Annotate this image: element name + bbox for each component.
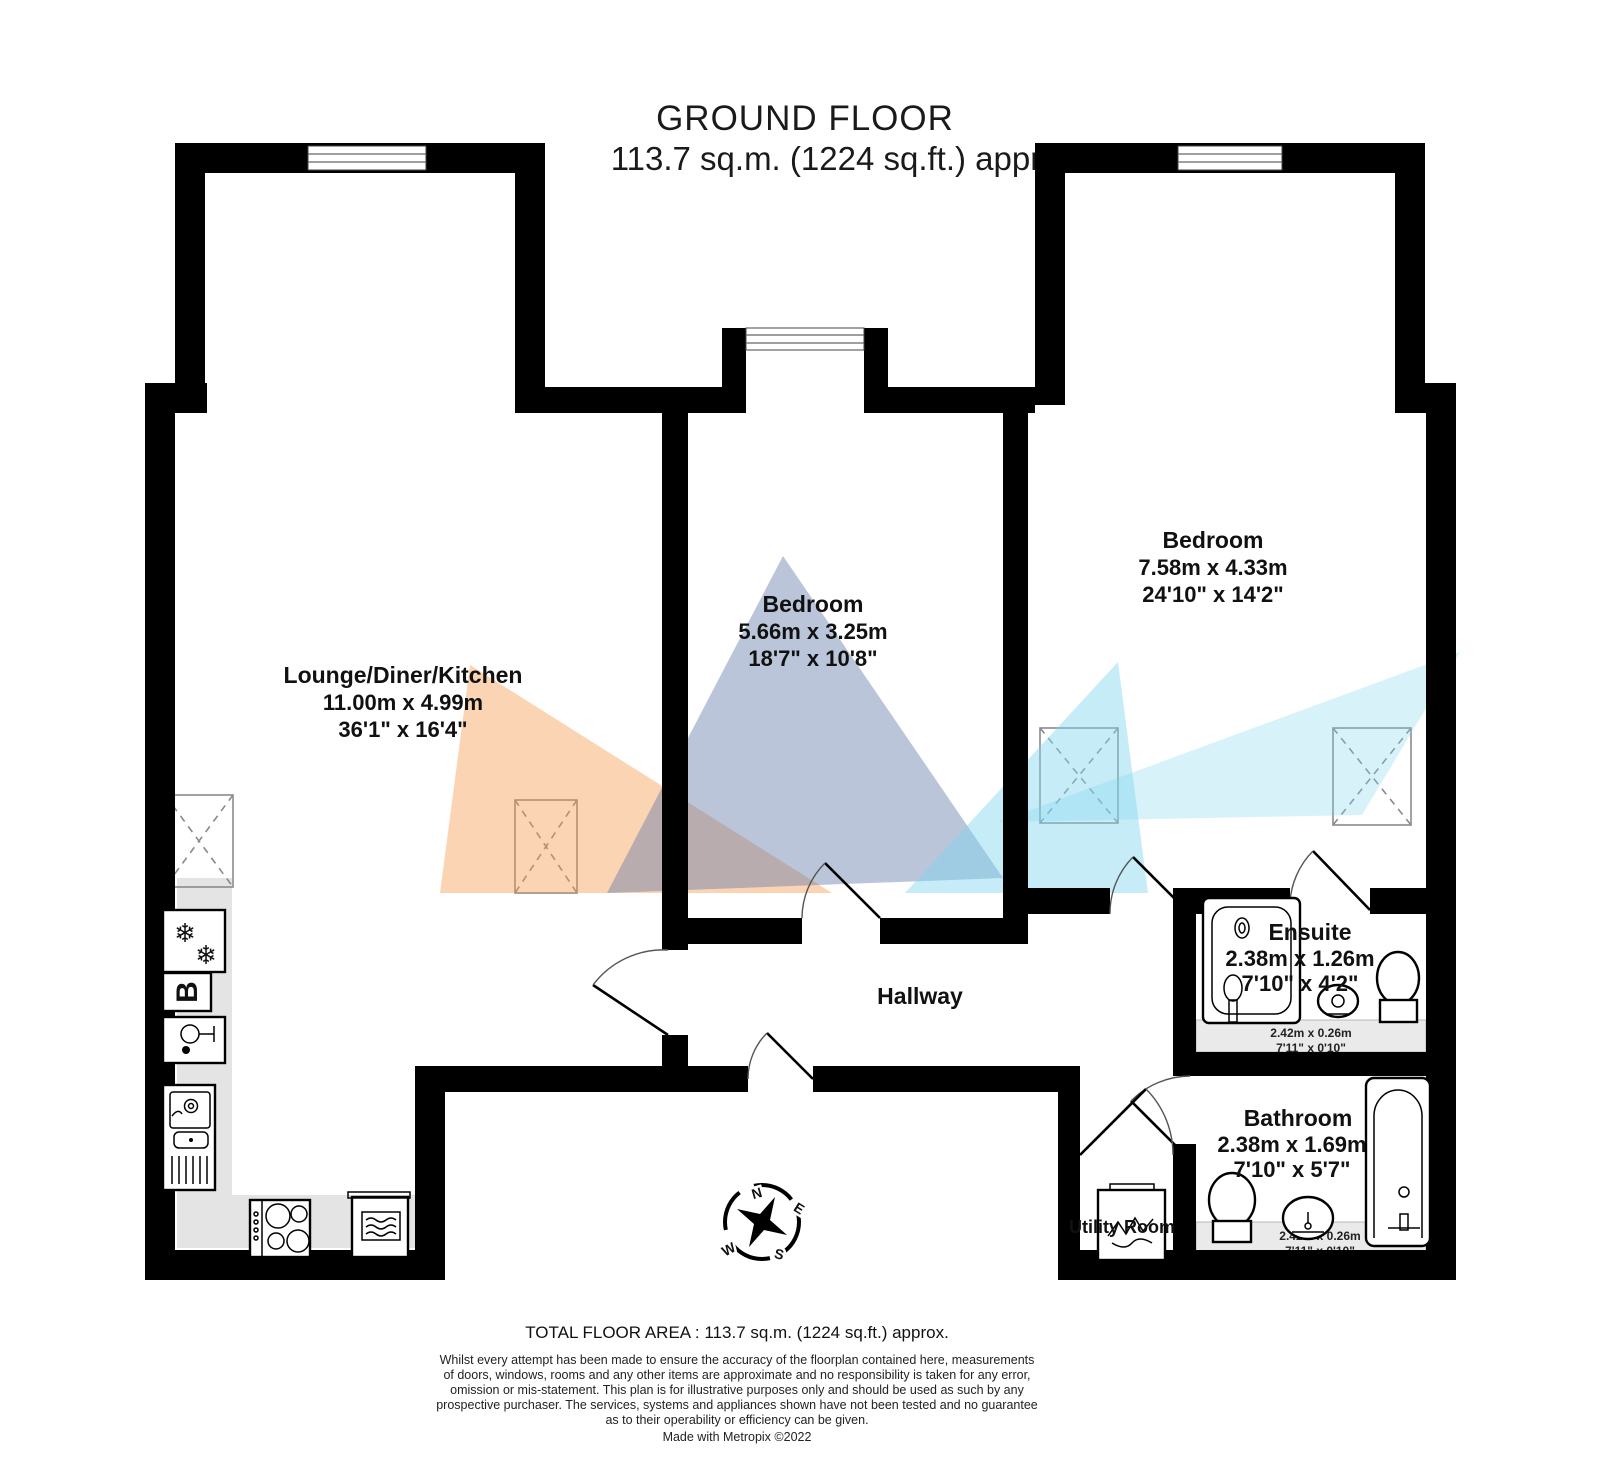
svg-text:❄: ❄ bbox=[195, 940, 217, 970]
wall bbox=[1173, 888, 1196, 1052]
wall bbox=[1003, 400, 1028, 944]
wall bbox=[662, 400, 688, 950]
floor-title: GROUND FLOOR bbox=[656, 99, 954, 138]
window-right-bay bbox=[1178, 146, 1282, 170]
compass-east: E bbox=[791, 1199, 807, 1218]
door-entrance bbox=[748, 1033, 813, 1079]
room-name: Bedroom bbox=[763, 591, 864, 617]
room-name: Lounge/Diner/Kitchen bbox=[284, 662, 523, 688]
ensuite-recess-strip: 2.42m x 0.26m 7'11" x 0'10" bbox=[1196, 1020, 1426, 1055]
door-ensuite bbox=[1290, 851, 1370, 910]
floorplan-page: GROUND FLOOR 113.7 sq.m. (1224 sq.ft.) a… bbox=[0, 0, 1600, 1457]
label-hallway: Hallway bbox=[877, 983, 963, 1009]
wall bbox=[662, 1035, 688, 1066]
door-utility bbox=[1080, 1089, 1173, 1155]
disclaimer-line: omission or mis-statement. This plan is … bbox=[450, 1383, 1024, 1397]
disclaimer-line: Whilst every attempt has been made to en… bbox=[440, 1353, 1035, 1367]
wall bbox=[1173, 1052, 1456, 1076]
bathtub-icon bbox=[1366, 1078, 1430, 1246]
label-bedroom-right: Bedroom 7.58m x 4.33m 24'10" x 14'2" bbox=[1138, 527, 1287, 607]
wall bbox=[515, 143, 545, 393]
compass-south: S bbox=[773, 1245, 786, 1263]
wall bbox=[1370, 888, 1456, 914]
window-lounge-bay bbox=[308, 146, 426, 170]
room-dim-metric: 7.58m x 4.33m bbox=[1138, 555, 1287, 580]
room-name: Bedroom bbox=[1163, 527, 1264, 553]
room-dim-metric: 2.38m x 1.26m bbox=[1225, 946, 1374, 971]
room-dim-imperial: 18'7" x 10'8" bbox=[748, 646, 877, 671]
wall bbox=[1035, 143, 1065, 405]
toilet-icon-ensuite bbox=[1377, 952, 1419, 1022]
svg-text:❄: ❄ bbox=[174, 918, 196, 948]
wall bbox=[1173, 1144, 1196, 1280]
boiler-letter: B bbox=[171, 981, 204, 1003]
basin-icon-bathroom bbox=[1283, 1197, 1333, 1239]
decorative-cones bbox=[440, 556, 1460, 893]
wall bbox=[813, 1066, 1080, 1092]
boiler-icon: B bbox=[163, 973, 211, 1011]
floor-area-subtitle: 113.7 sq.m. (1224 sq.ft.) approx. bbox=[611, 140, 1085, 177]
compass-star bbox=[737, 1197, 787, 1247]
wall bbox=[722, 328, 746, 413]
label-utility: Utility Room bbox=[1069, 1217, 1175, 1237]
disclaimer-line: of doors, windows, rooms and any other i… bbox=[443, 1368, 1030, 1382]
disclaimer-line: as to their operability or efficiency ca… bbox=[605, 1413, 868, 1427]
sink-unit-icon bbox=[163, 1085, 215, 1190]
door-lounge bbox=[593, 950, 668, 1035]
room-dim-imperial: 7'10" x 4'2" bbox=[1242, 971, 1359, 996]
floorplan-canvas: GROUND FLOOR 113.7 sq.m. (1224 sq.ft.) a… bbox=[0, 0, 1600, 1457]
room-dim-metric: 5.66m x 3.25m bbox=[738, 619, 887, 644]
label-bathroom: Bathroom 2.38m x 1.69m 7'10" x 5'7" bbox=[1217, 1105, 1366, 1182]
room-name: Ensuite bbox=[1268, 919, 1351, 945]
feature-box-kitchen bbox=[165, 795, 233, 887]
wine-cooler-icon bbox=[163, 1017, 225, 1063]
fridge-freezer-icon: ❄ ❄ bbox=[163, 910, 225, 972]
oven-icon bbox=[348, 1192, 410, 1257]
compass-rose: N E W S bbox=[719, 1184, 807, 1263]
footer: TOTAL FLOOR AREA : 113.7 sq.m. (1224 sq.… bbox=[436, 1323, 1038, 1444]
toilet-icon-bathroom bbox=[1209, 1173, 1255, 1242]
room-name: Bathroom bbox=[1244, 1105, 1353, 1131]
disclaimer-line: prospective purchaser. The services, sys… bbox=[436, 1398, 1038, 1412]
total-floor-area: TOTAL FLOOR AREA : 113.7 sq.m. (1224 sq.… bbox=[525, 1323, 949, 1342]
room-dim-metric: 2.38m x 1.69m bbox=[1217, 1132, 1366, 1157]
wall bbox=[175, 143, 205, 405]
wall bbox=[415, 1066, 445, 1280]
ensuite-recess-metric: 2.42m x 0.26m bbox=[1270, 1026, 1351, 1040]
wall bbox=[415, 1066, 748, 1092]
plan-title: GROUND FLOOR 113.7 sq.m. (1224 sq.ft.) a… bbox=[611, 99, 1085, 177]
room-dim-imperial: 7'10" x 5'7" bbox=[1234, 1157, 1351, 1182]
compass-west: W bbox=[719, 1239, 739, 1260]
room-dim-imperial: 24'10" x 14'2" bbox=[1142, 582, 1283, 607]
wall bbox=[662, 918, 802, 944]
room-dim-metric: 11.00m x 4.99m bbox=[323, 690, 483, 715]
window-middle-bay bbox=[746, 328, 864, 350]
wall bbox=[1028, 888, 1110, 914]
wall bbox=[1395, 143, 1425, 393]
wall bbox=[515, 387, 724, 413]
wall bbox=[864, 328, 888, 413]
hob-icon bbox=[250, 1200, 310, 1257]
room-dim-imperial: 36'1" x 16'4" bbox=[338, 717, 467, 742]
credit-line: Made with Metropix ©2022 bbox=[663, 1430, 812, 1444]
